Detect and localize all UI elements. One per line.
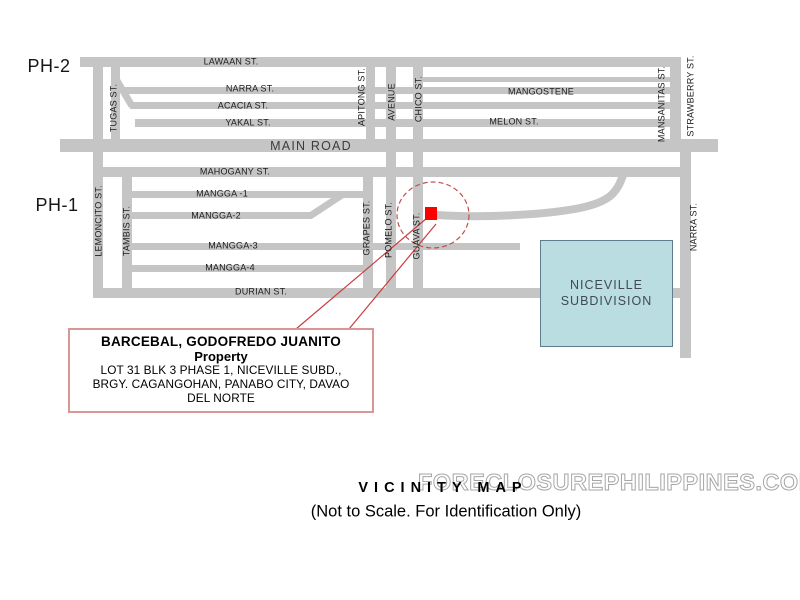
property-highlight-circle: [397, 182, 469, 248]
street-label-mangga-2: MANGGA-2: [191, 212, 241, 221]
street-label-tugas: TUGAS ST.: [110, 84, 119, 132]
road-mansanitas-strawberry: [670, 57, 681, 143]
street-label-melon: MELON ST.: [489, 118, 538, 127]
road-east-lane: [423, 77, 670, 82]
callout-owner-name: BARCEBAL, GODOFREDO JUANITO: [70, 334, 372, 350]
street-label-mahogany: MAHOGANY ST.: [200, 168, 270, 177]
street-label-narra-right: NARRA ST.: [690, 203, 699, 251]
road-mangga-3: [127, 243, 520, 250]
street-label-mansanitas: MANSANITAS ST.: [658, 66, 667, 142]
street-label-pomelo: POMELO ST.: [385, 202, 394, 258]
callout-address-line2: BRGY. CAGANGOHAN, PANABO CITY, DAVAO: [70, 378, 372, 392]
road-narra-st-top: [124, 87, 670, 94]
street-label-chico: CHICO ST.: [415, 76, 424, 122]
street-label-avenue: AVENUE: [388, 83, 397, 121]
road-narra-st-right: [680, 152, 691, 358]
street-label-lemoncito: LEMONCITO ST.: [95, 185, 104, 256]
street-label-tambis: TAMBIS ST.: [123, 206, 132, 256]
region-label-ph1: PH-1: [35, 196, 78, 214]
road-apitong-st: [366, 60, 375, 140]
niceville-subdivision-block: NICEVILLE SUBDIVISION: [540, 240, 673, 347]
map-title: VICINITY MAP: [358, 480, 527, 496]
road-yakal-melon-st: [135, 119, 670, 127]
street-label-lawaan: LAWAAN ST.: [204, 58, 259, 67]
vicinity-map-page: NICEVILLE SUBDIVISION PH-2 PH-1 LAWAAN S…: [0, 0, 800, 600]
niceville-label-line2: SUBDIVISION: [561, 294, 653, 310]
map-subtitle: (Not to Scale. For Identification Only): [311, 503, 582, 522]
street-label-guava: GUAVA ST.: [413, 213, 422, 260]
street-label-durian: DURIAN ST.: [235, 288, 287, 297]
street-label-strawberry: STRAWBERRY ST.: [687, 55, 696, 136]
street-label-mangga-1: MANGGA -1: [196, 190, 248, 199]
road-lawaan-st: [80, 57, 681, 67]
street-label-acacia: ACACIA ST.: [218, 102, 269, 111]
property-callout-box: BARCEBAL, GODOFREDO JUANITO Property LOT…: [68, 328, 374, 413]
street-label-apitong: APITONG ST.: [358, 68, 367, 126]
street-label-main-road: MAIN ROAD: [270, 140, 352, 153]
road-mangga-connector: [310, 195, 342, 216]
street-label-narra-top: NARRA ST.: [226, 85, 274, 94]
property-marker: [425, 207, 437, 220]
road-left-vertical-lemoncito: [93, 60, 103, 298]
region-label-ph2: PH-2: [27, 57, 70, 75]
street-label-mangostene: MANGOSTENE: [508, 88, 574, 97]
niceville-label-line1: NICEVILLE: [570, 278, 643, 294]
street-label-mangga-4: MANGGA-4: [205, 264, 255, 273]
road-acacia-st: [130, 102, 670, 109]
callout-address-line3: DEL NORTE: [70, 392, 372, 406]
callout-property-label: Property: [70, 350, 372, 365]
street-label-mangga-3: MANGGA-3: [208, 242, 258, 251]
callout-address-line1: LOT 31 BLK 3 PHASE 1, NICEVILLE SUBD.,: [70, 364, 372, 378]
street-label-yakal: YAKAL ST.: [225, 119, 270, 128]
road-curved-access: [437, 175, 623, 216]
road-mahogany-st: [103, 167, 688, 177]
street-label-grapes: GRAPES ST.: [363, 200, 372, 255]
